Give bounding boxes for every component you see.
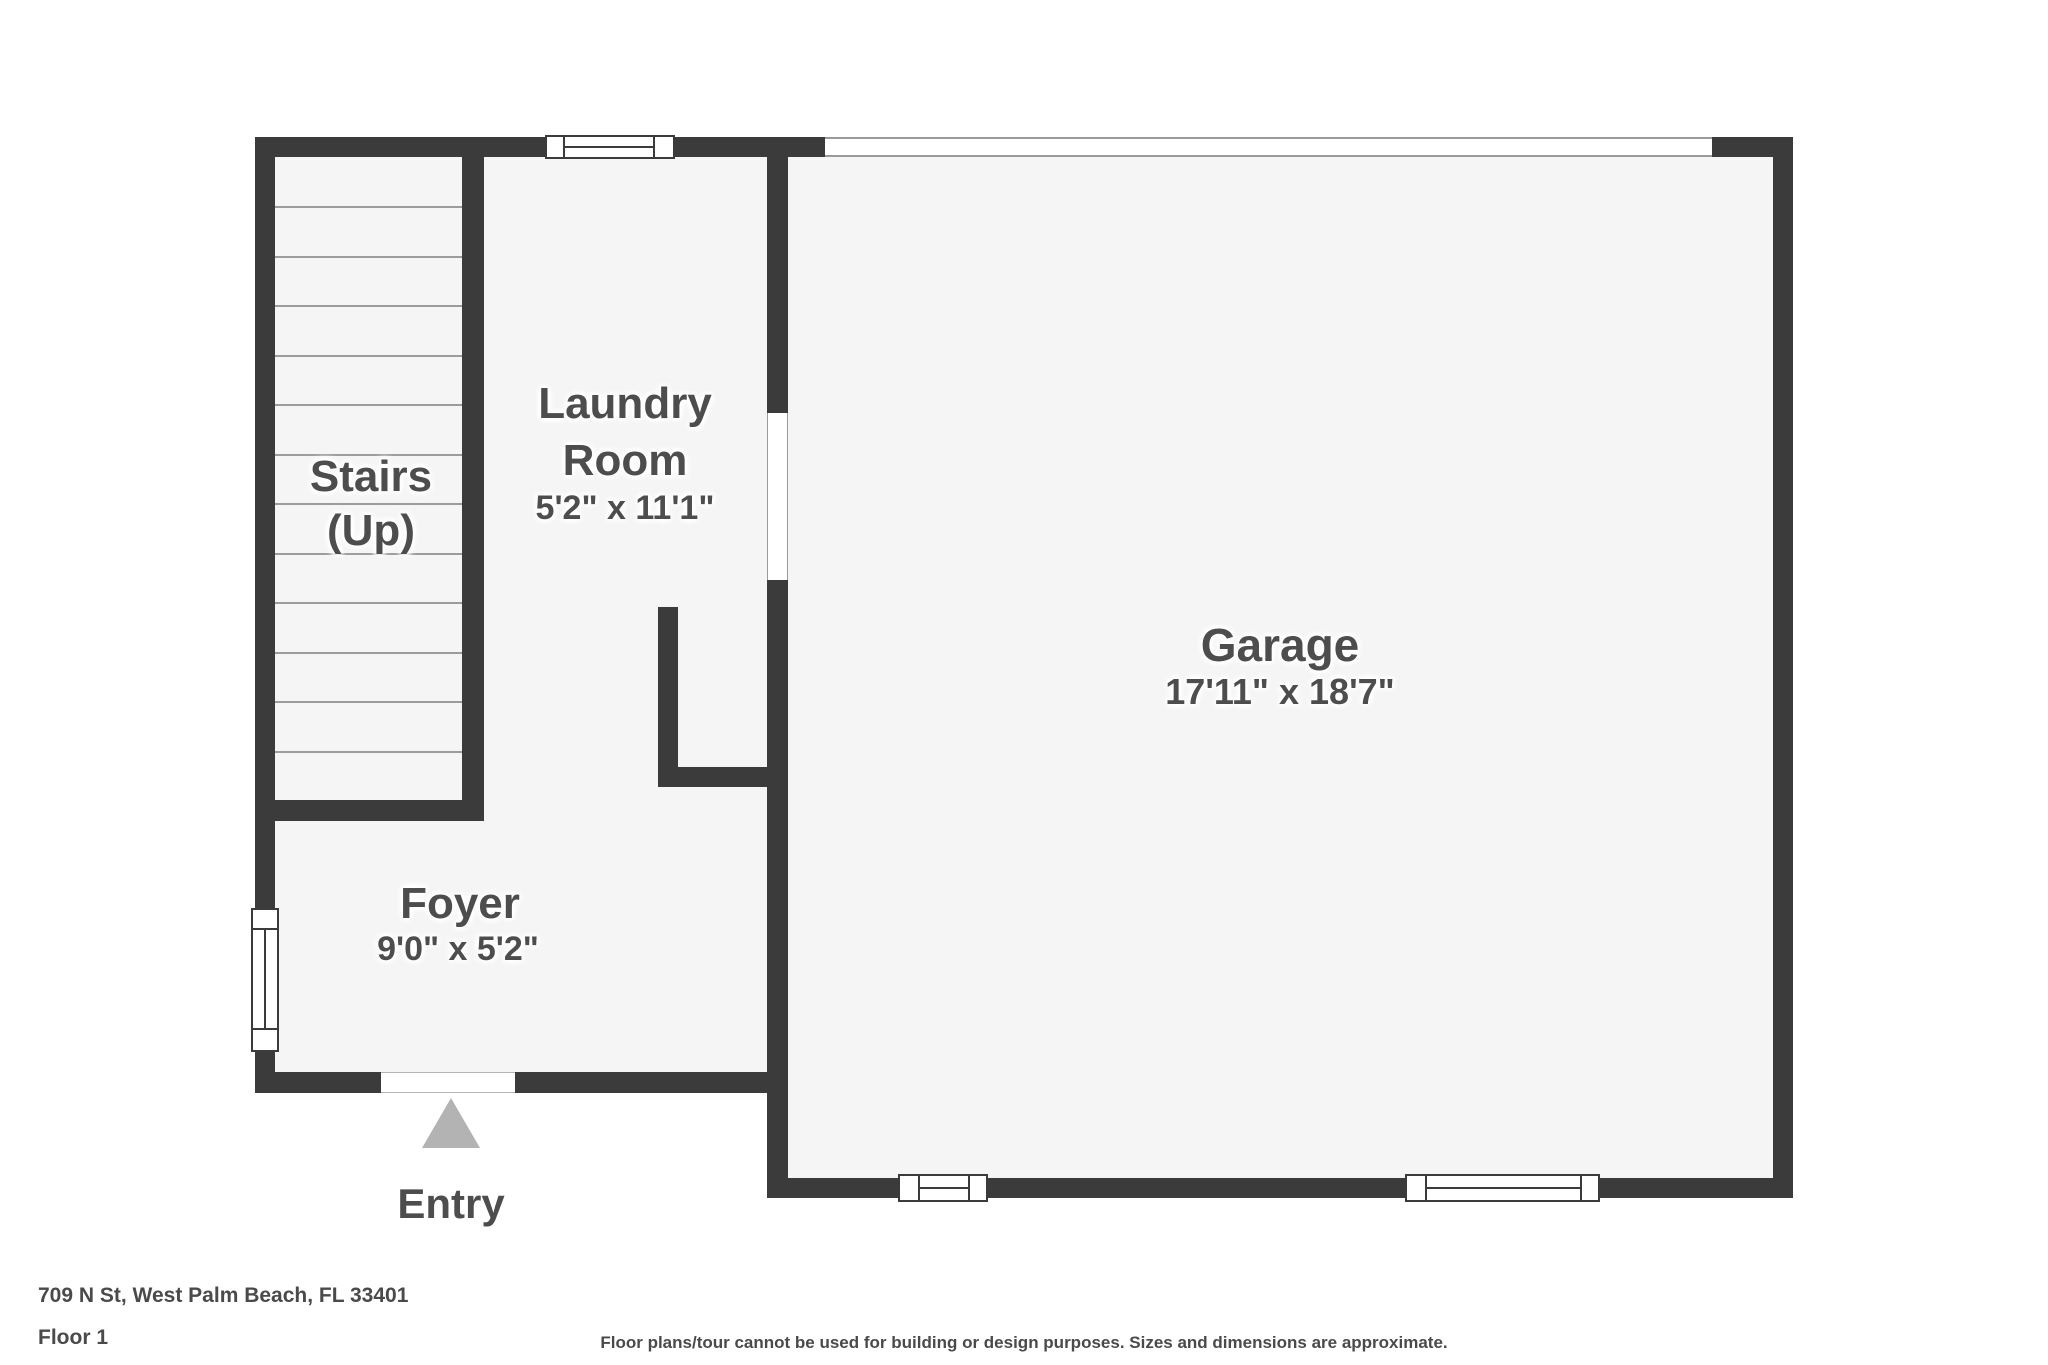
laundry-room-dimensions: 5'2" x 11'1" — [536, 489, 715, 527]
entry-door-opening — [381, 1072, 515, 1093]
stair-tread-line — [275, 206, 462, 208]
wall-garage-bottom-mid — [988, 1178, 1405, 1198]
floorplan-page: Stairs (Up) Laundry Room 5'2" x 11'1" Ga… — [0, 0, 2048, 1365]
wall-stairs-right — [462, 137, 484, 821]
entry-label: Entry — [397, 1182, 504, 1226]
stair-tread-line — [275, 652, 462, 654]
foyer-left-window — [251, 908, 279, 1052]
garage-room-dimensions: 17'11" x 18'7" — [1165, 672, 1394, 712]
property-address: 709 N St, West Palm Beach, FL 33401 — [38, 1284, 408, 1308]
wall-left-upper — [255, 137, 275, 910]
stair-tread-line — [275, 751, 462, 753]
laundry-top-window — [545, 135, 675, 159]
wall-garage-bottom-left — [767, 1178, 898, 1198]
wall-laundry-stub-vertical — [658, 607, 678, 787]
stair-tread-line — [275, 602, 462, 604]
laundry-garage-door-opening — [767, 413, 788, 580]
stair-tread-line — [275, 355, 462, 357]
laundry-label-line1: Laundry — [538, 375, 712, 432]
wall-garage-bottom-right — [1600, 1178, 1793, 1198]
wall-top-left-segment — [255, 137, 545, 157]
garage-door-opening — [825, 137, 1712, 157]
stair-tread-line — [275, 701, 462, 703]
garage-room-label: Garage — [1201, 620, 1360, 670]
garage-bottom-window-small — [898, 1174, 988, 1202]
wall-garage-left-lower — [767, 580, 788, 1198]
wall-garage-left-upper — [767, 137, 788, 413]
stair-tread-line — [275, 404, 462, 406]
wall-garage-right — [1773, 137, 1793, 1198]
entry-direction-arrow-icon — [422, 1098, 480, 1148]
wall-laundry-stub-horizontal — [658, 767, 788, 787]
wall-foyer-bottom-right — [515, 1072, 788, 1093]
laundry-label-line2: Room — [538, 432, 712, 489]
laundry-room-label: Laundry Room — [538, 375, 712, 489]
foyer-room-label: Foyer — [400, 880, 520, 928]
stairs-label-line1: Stairs — [310, 450, 432, 504]
floor-indicator: Floor 1 — [38, 1326, 108, 1350]
wall-stairs-bottom — [255, 800, 484, 821]
foyer-room-dimensions: 9'0" x 5'2" — [377, 930, 539, 968]
disclaimer-text: Floor plans/tour cannot be used for buil… — [600, 1333, 1447, 1353]
wall-foyer-bottom-left — [255, 1072, 381, 1093]
stair-tread-line — [275, 256, 462, 258]
stairs-label-line2: (Up) — [310, 504, 432, 558]
stairs-room-label: Stairs (Up) — [310, 450, 432, 558]
garage-bottom-window-large — [1405, 1174, 1600, 1202]
wall-top-mid-segment — [675, 137, 825, 157]
stair-tread-line — [275, 305, 462, 307]
